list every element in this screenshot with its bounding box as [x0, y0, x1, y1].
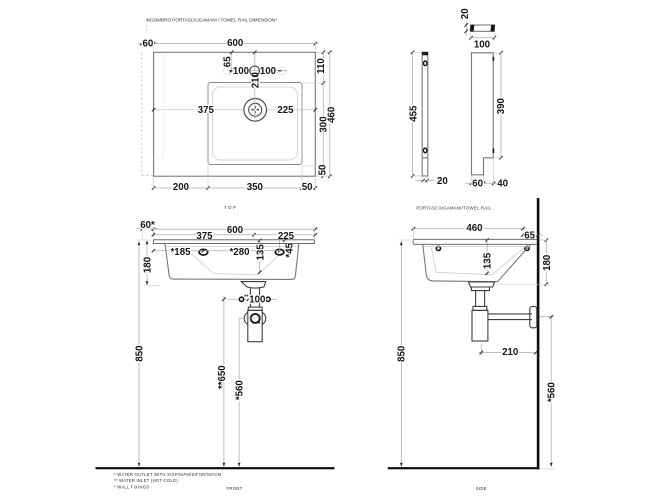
svg-text:135: 135 — [255, 244, 266, 261]
svg-text:**650: **650 — [217, 365, 228, 389]
svg-text:*45: *45 — [285, 242, 296, 257]
svg-text:*560: *560 — [547, 382, 558, 402]
svg-text:455: 455 — [409, 105, 420, 122]
svg-text:40: 40 — [497, 179, 508, 190]
svg-text:100: 100 — [260, 66, 276, 77]
svg-text:460: 460 — [327, 107, 338, 123]
svg-text:135: 135 — [482, 252, 493, 269]
svg-text:375: 375 — [196, 231, 213, 242]
svg-text:210: 210 — [502, 347, 518, 358]
svg-text:600: 600 — [227, 38, 243, 49]
svg-text:TOP: TOP — [224, 205, 238, 210]
svg-text:FRONT: FRONT — [226, 486, 242, 491]
svg-text:225: 225 — [277, 105, 294, 116]
svg-text:60: 60 — [472, 179, 483, 190]
svg-text:460: 460 — [466, 223, 482, 234]
svg-text:SIDE: SIDE — [476, 486, 487, 491]
svg-text:* WATER OUTLET WITH SISP/SIFM: * WATER OUTLET WITH SISP/SIFM/SIFOR/SIFC… — [114, 472, 221, 477]
svg-text:390: 390 — [496, 98, 507, 114]
svg-text:*185: *185 — [171, 247, 192, 258]
svg-text:200: 200 — [173, 182, 189, 193]
svg-text:180: 180 — [143, 257, 154, 273]
svg-text:*280: *280 — [230, 247, 250, 258]
svg-text:100: 100 — [249, 295, 265, 306]
svg-text:100: 100 — [474, 40, 490, 51]
svg-text:225: 225 — [278, 231, 295, 242]
svg-text:INGOMBRO PORTASCIUGAMANI / TOW: INGOMBRO PORTASCIUGAMANI / TOWEL RAIL DI… — [146, 18, 278, 23]
svg-text:* WALL FIXINGS: * WALL FIXINGS — [114, 485, 149, 490]
svg-text:850: 850 — [397, 346, 408, 362]
svg-text:350: 350 — [247, 182, 263, 193]
svg-text:60: 60 — [143, 38, 154, 49]
svg-text:PORTASCIUGAMANI/TOWEL RAIL: PORTASCIUGAMANI/TOWEL RAIL — [416, 205, 491, 210]
svg-text:180: 180 — [542, 255, 553, 271]
svg-text:20: 20 — [437, 176, 448, 187]
svg-text:850: 850 — [135, 346, 146, 362]
svg-text:110: 110 — [316, 58, 327, 74]
svg-text:60*: 60* — [140, 220, 155, 231]
svg-text:*560: *560 — [235, 380, 246, 400]
svg-text:20: 20 — [460, 8, 471, 19]
svg-text:50: 50 — [318, 165, 329, 176]
svg-text:375: 375 — [198, 105, 215, 116]
svg-text:** WATER INLET (HOT-COLD): ** WATER INLET (HOT-COLD) — [114, 478, 178, 483]
svg-text:100: 100 — [233, 66, 249, 77]
svg-text:50: 50 — [302, 182, 313, 193]
